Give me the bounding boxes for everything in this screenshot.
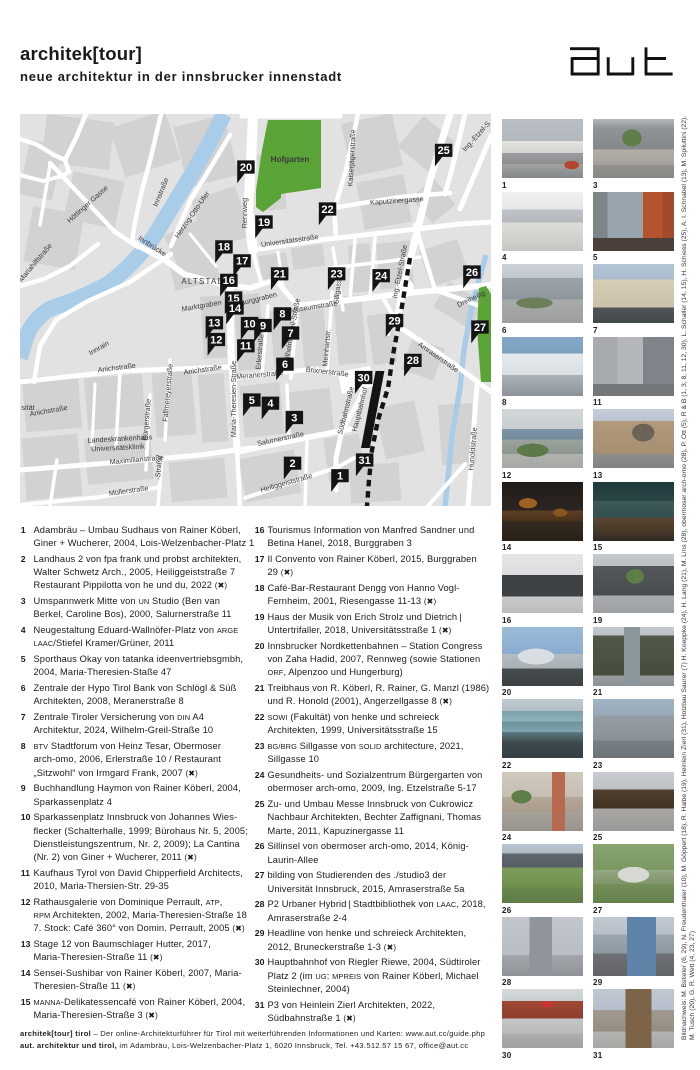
svg-text:6: 6 [282, 359, 288, 371]
svg-text:24: 24 [375, 271, 388, 283]
svg-text:16: 16 [223, 275, 235, 287]
svg-text:23: 23 [330, 269, 342, 281]
svg-text:17: 17 [236, 256, 248, 268]
svg-text:18: 18 [218, 242, 230, 254]
svg-text:25: 25 [438, 145, 450, 157]
svg-text:11: 11 [240, 341, 252, 353]
svg-text:19: 19 [258, 217, 270, 229]
svg-text:28: 28 [407, 355, 419, 367]
svg-text:Rennweg: Rennweg [240, 198, 249, 228]
svg-text:27: 27 [474, 322, 486, 334]
svg-text:10: 10 [243, 318, 255, 330]
svg-text:31: 31 [358, 455, 370, 467]
svg-text:5: 5 [249, 395, 255, 407]
svg-text:21: 21 [273, 269, 285, 281]
svg-text:22: 22 [321, 204, 333, 216]
svg-text:4: 4 [267, 398, 274, 410]
svg-text:sität: sität [21, 403, 34, 412]
svg-text:29: 29 [388, 316, 400, 328]
svg-text:30: 30 [357, 372, 369, 384]
svg-text:8: 8 [279, 309, 285, 321]
svg-text:2: 2 [289, 458, 295, 470]
svg-text:20: 20 [240, 162, 252, 174]
svg-text:7: 7 [287, 328, 293, 340]
svg-text:26: 26 [466, 267, 478, 279]
svg-text:14: 14 [229, 303, 242, 315]
svg-text:9: 9 [260, 320, 266, 332]
svg-text:Hofgarten: Hofgarten [271, 155, 310, 164]
svg-text:13: 13 [208, 318, 220, 330]
svg-text:12: 12 [210, 334, 222, 346]
svg-text:3: 3 [291, 412, 297, 424]
svg-text:1: 1 [337, 471, 343, 483]
